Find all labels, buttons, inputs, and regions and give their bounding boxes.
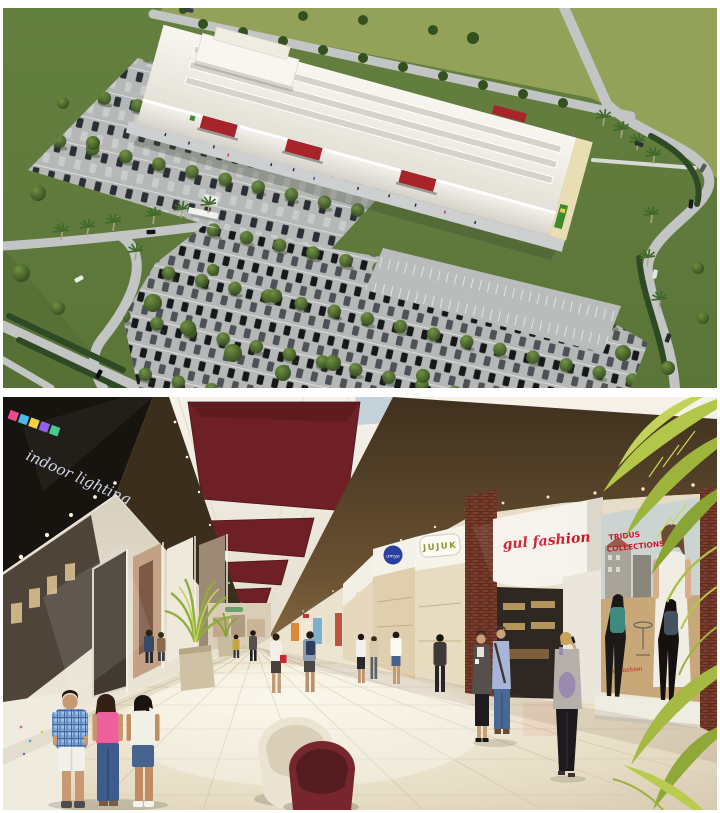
aerial-render (3, 8, 717, 388)
woman-beanie (472, 630, 492, 742)
interior-render: indoor lighting (3, 397, 717, 810)
interior-svg: indoor lighting (3, 397, 717, 810)
blue-logo-text: amya (386, 554, 400, 560)
render-montage: indoor lighting (0, 0, 720, 813)
aerial-svg (3, 8, 717, 388)
brick-pillar-far-right (700, 487, 717, 735)
man-blue-shirt (492, 626, 511, 734)
distant-green-sign (225, 607, 243, 612)
